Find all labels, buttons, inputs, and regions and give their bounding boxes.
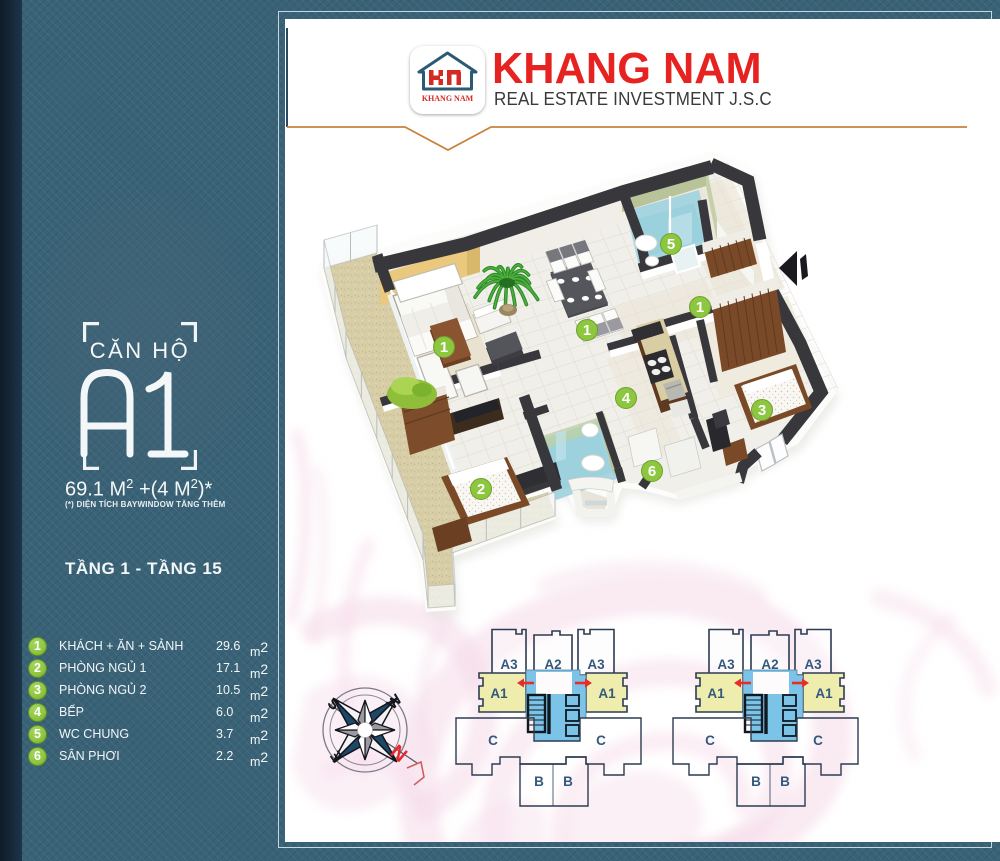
svg-text:A2: A2: [761, 657, 778, 672]
svg-text:A1: A1: [707, 686, 725, 701]
svg-text:2: 2: [477, 481, 485, 498]
svg-text:4: 4: [622, 390, 631, 407]
svg-text:B: B: [534, 774, 544, 789]
svg-text:C: C: [705, 733, 715, 748]
svg-text:A3: A3: [500, 657, 518, 672]
svg-text:1: 1: [583, 322, 591, 339]
svg-text:A3: A3: [804, 657, 822, 672]
svg-text:A1: A1: [490, 686, 508, 701]
svg-text:A3: A3: [587, 657, 605, 672]
svg-text:A1: A1: [598, 686, 616, 701]
svg-text:A3: A3: [717, 657, 735, 672]
svg-text:B: B: [780, 774, 790, 789]
svg-text:6: 6: [648, 463, 656, 480]
svg-text:B: B: [563, 774, 573, 789]
svg-text:A1: A1: [815, 686, 833, 701]
svg-text:1: 1: [696, 299, 704, 316]
svg-text:C: C: [596, 733, 606, 748]
svg-text:KHANG NAM: KHANG NAM: [422, 94, 474, 103]
svg-text:C: C: [813, 733, 823, 748]
svg-text:A2: A2: [544, 657, 561, 672]
svg-text:B: B: [751, 774, 761, 789]
svg-text:1: 1: [440, 339, 448, 356]
svg-text:C: C: [488, 733, 498, 748]
svg-text:5: 5: [667, 236, 675, 253]
svg-text:3: 3: [758, 402, 766, 419]
